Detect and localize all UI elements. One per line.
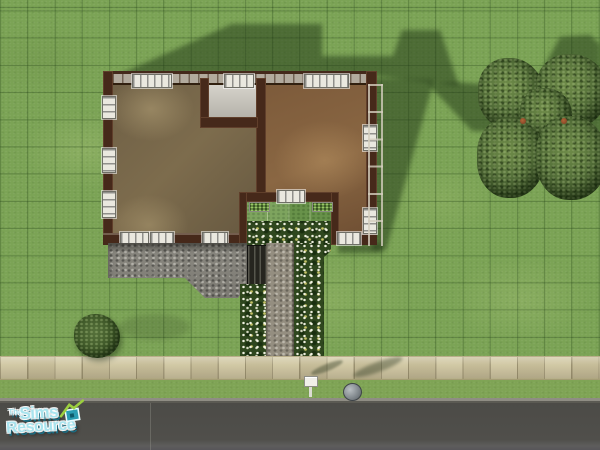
road-verge bbox=[0, 378, 600, 398]
tsr-watermark: The Sims Resource bbox=[5, 400, 117, 448]
window[interactable] bbox=[132, 74, 172, 88]
tree-shadow bbox=[120, 314, 190, 340]
window[interactable] bbox=[277, 190, 305, 203]
road-joint bbox=[150, 403, 151, 450]
tree-trunk bbox=[520, 118, 526, 124]
window[interactable] bbox=[102, 191, 116, 218]
flower-box[interactable] bbox=[312, 202, 333, 212]
trash-can[interactable] bbox=[343, 383, 362, 401]
tree-trunk bbox=[561, 118, 567, 124]
courtyard-wall[interactable] bbox=[239, 192, 247, 245]
window[interactable] bbox=[102, 148, 116, 173]
gravel-path[interactable] bbox=[266, 243, 294, 356]
window[interactable] bbox=[337, 232, 361, 245]
foundation-marks bbox=[368, 84, 383, 246]
tsr-house-icon bbox=[56, 397, 89, 425]
sidewalk bbox=[0, 356, 600, 380]
flower-bed[interactable] bbox=[240, 284, 266, 357]
tree[interactable] bbox=[536, 116, 600, 200]
alcove-wall[interactable] bbox=[200, 117, 258, 128]
game-viewport: The Sims Resource bbox=[0, 0, 600, 450]
bush[interactable] bbox=[74, 314, 120, 358]
stairs[interactable] bbox=[247, 245, 267, 286]
flower-bed[interactable] bbox=[246, 221, 331, 245]
wall-divider[interactable] bbox=[256, 78, 266, 194]
flower-box[interactable] bbox=[249, 202, 270, 212]
mailbox[interactable] bbox=[304, 376, 318, 387]
window[interactable] bbox=[304, 74, 349, 88]
window[interactable] bbox=[102, 96, 116, 119]
tree[interactable] bbox=[477, 118, 545, 198]
window[interactable] bbox=[224, 74, 254, 88]
